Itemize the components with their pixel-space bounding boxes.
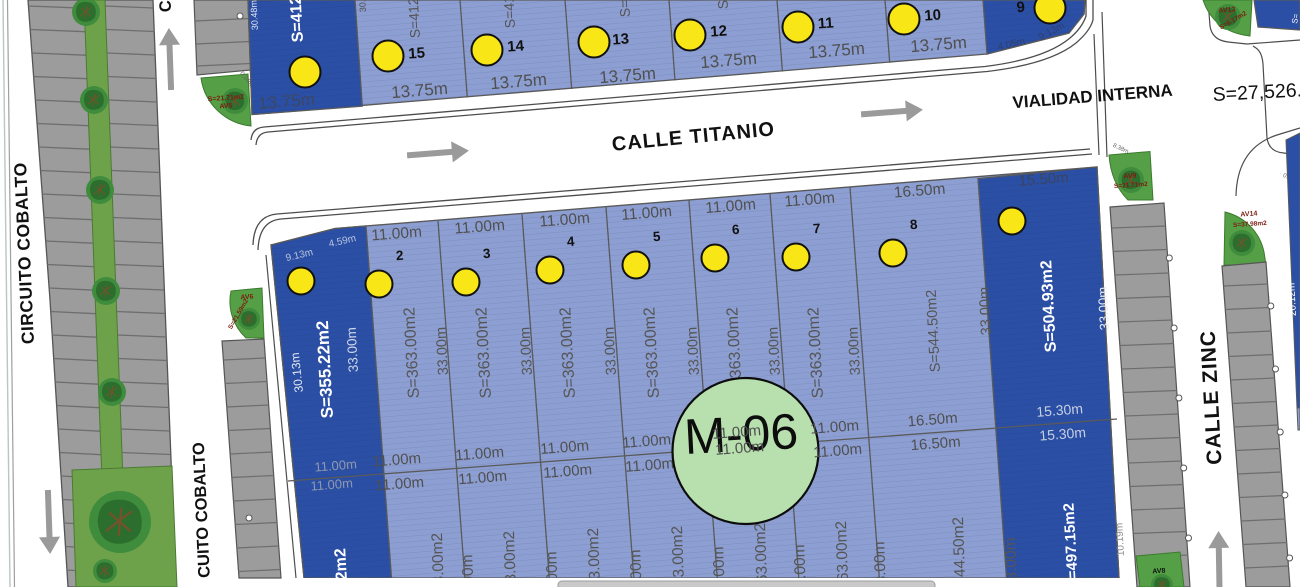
svg-text:S=412.50m2: S=412.50m2 [498, 0, 518, 29]
svg-text:33.00m: 33.00m [433, 326, 452, 375]
svg-text:33.00m: 33.00m [517, 326, 536, 375]
svg-text:10.19m: 10.19m [1114, 523, 1127, 557]
svg-text:S=363.00m2: S=363.00m2 [833, 521, 853, 587]
svg-text:33.00m: 33.00m [601, 326, 620, 375]
svg-text:9: 9 [1016, 0, 1026, 16]
svg-text:AV13: AV13 [1218, 6, 1236, 14]
svg-text:33.00m: 33.00m [1095, 287, 1112, 331]
svg-text:S=363.00m2: S=363.00m2 [752, 523, 772, 587]
svg-text:AV8: AV8 [1152, 568, 1166, 576]
svg-text:12: 12 [710, 22, 728, 40]
svg-text:30.48m: 30.48m [248, 0, 260, 30]
svg-text:15: 15 [408, 44, 426, 62]
svg-text:2: 2 [395, 248, 404, 263]
svg-text:S=363.00m2: S=363.00m2 [669, 526, 689, 587]
svg-text:14: 14 [507, 37, 525, 55]
svg-text:7: 7 [812, 221, 821, 236]
svg-text:33.00m: 33.00m [684, 326, 703, 375]
svg-text:33.00m: 33.00m [344, 327, 361, 373]
svg-text:20.12m: 20.12m [1286, 283, 1299, 317]
svg-text:AV9: AV9 [1123, 173, 1137, 181]
svg-text:11: 11 [817, 14, 834, 32]
svg-text:AV14: AV14 [1240, 210, 1258, 218]
svg-text:33.00m: 33.00m [976, 286, 995, 335]
svg-text:S=: S= [1290, 13, 1300, 25]
svg-text:S=27,526.7: S=27,526.7 [1212, 79, 1300, 106]
svg-text:30.48m: 30.48m [356, 0, 368, 12]
svg-text:33.00m: 33.00m [765, 326, 784, 375]
svg-text:S=412.50m2: S=412.50m2 [403, 0, 423, 39]
svg-text:S=544.50m2: S=544.50m2 [950, 517, 970, 587]
svg-text:10: 10 [924, 6, 942, 24]
svg-text:33.00m: 33.00m [845, 326, 864, 375]
svg-text:13: 13 [612, 30, 630, 48]
svg-text:AV5: AV5 [219, 103, 233, 111]
